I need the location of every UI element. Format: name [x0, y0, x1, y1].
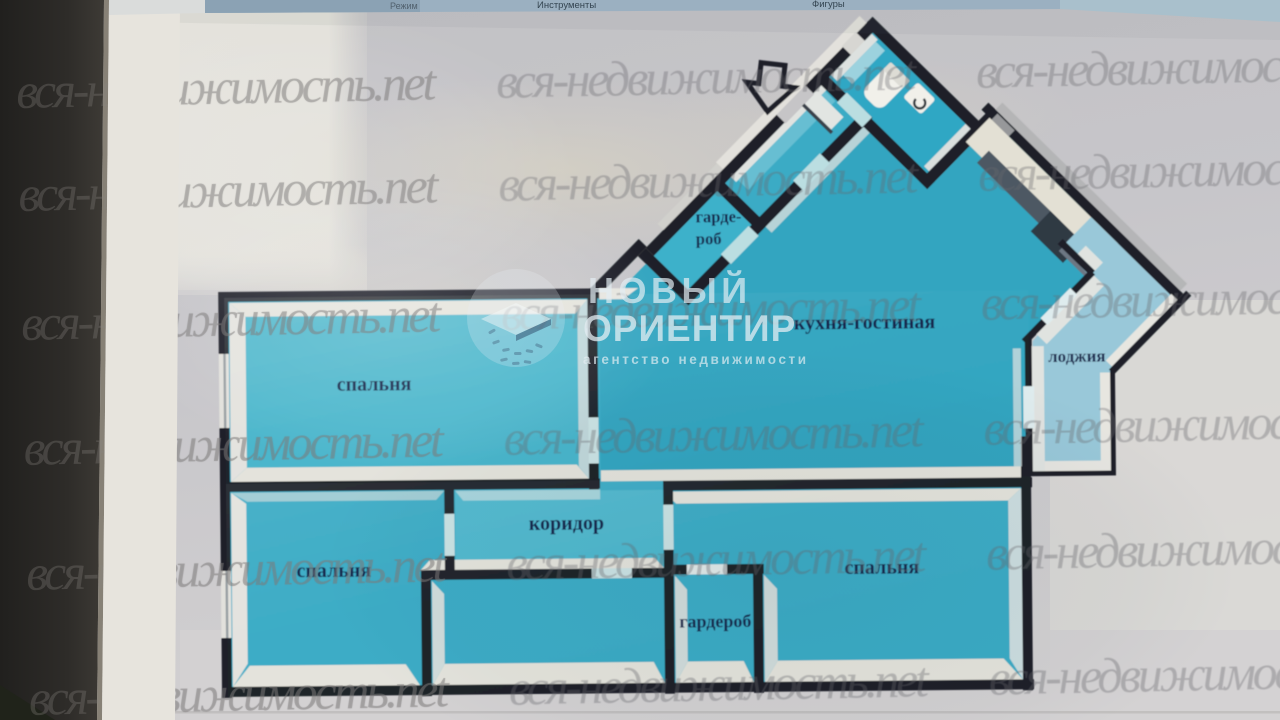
svg-text:вся-недвижимость.net: вся-недвижимость.net — [26, 536, 448, 601]
svg-text:вся-недвижимость.net: вся-недвижимость.net — [16, 54, 438, 119]
svg-text:вся-недвижимость.net: вся-недвижимость.net — [28, 661, 450, 720]
svg-text:вся-недвижимость.net: вся-недвижимость.net — [21, 286, 443, 351]
svg-text:вся-недвижимость.net: вся-недвижимость.net — [23, 411, 445, 476]
svg-text:вся-недвижимость.net: вся-недвижимость.net — [18, 157, 440, 222]
